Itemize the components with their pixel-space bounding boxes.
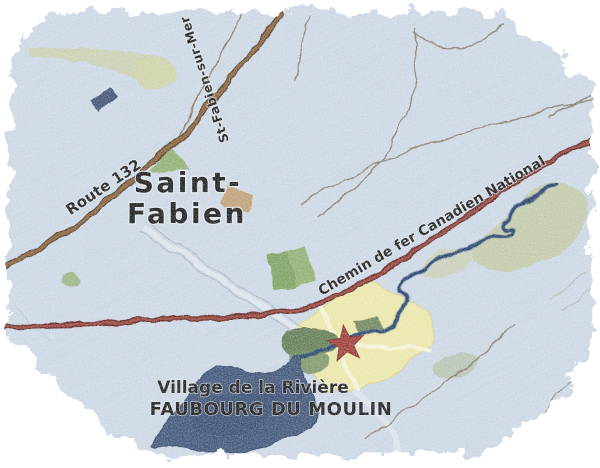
map-canvas: Route 132 St-Fabien-sur-Mer Saint- Fabie… — [0, 0, 600, 468]
white-grain-texture — [0, 0, 600, 468]
saint-fabien-map: Route 132 St-Fabien-sur-Mer Saint- Fabie… — [0, 0, 600, 468]
